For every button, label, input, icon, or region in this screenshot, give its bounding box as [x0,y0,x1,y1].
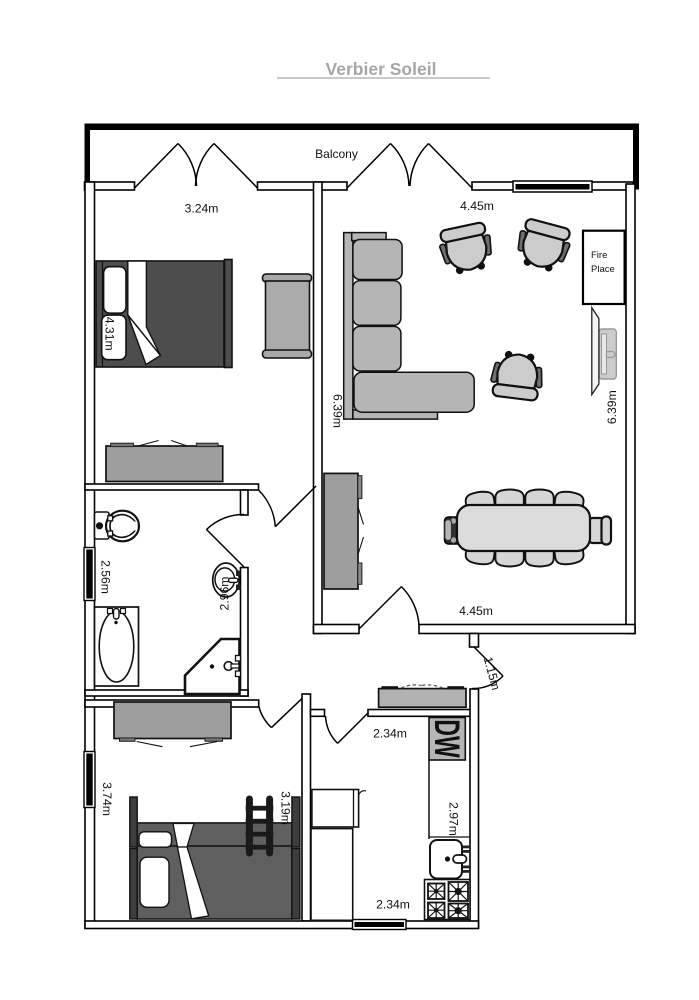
svg-text:3.19m: 3.19m [279,791,293,825]
svg-text:6.39m: 6.39m [330,394,344,428]
svg-text:2.56m: 2.56m [99,560,113,594]
svg-text:2.34m: 2.34m [376,898,410,912]
svg-text:4.45m: 4.45m [459,604,493,618]
svg-text:2.96m: 2.96m [218,577,232,611]
svg-text:6.39m: 6.39m [605,390,619,424]
svg-text:Verbier Soleil: Verbier Soleil [326,59,437,79]
svg-text:Place: Place [591,264,615,275]
svg-text:2.97m: 2.97m [447,802,461,836]
svg-text:4.31m: 4.31m [103,317,117,351]
svg-text:3.24m: 3.24m [185,202,219,216]
svg-text:DW: DW [427,719,466,758]
svg-text:Fire: Fire [591,250,607,261]
svg-text:3.74m: 3.74m [100,782,114,816]
svg-text:Balcony: Balcony [315,147,358,161]
svg-text:4.45m: 4.45m [460,199,494,213]
svg-text:2.34m: 2.34m [373,727,407,741]
